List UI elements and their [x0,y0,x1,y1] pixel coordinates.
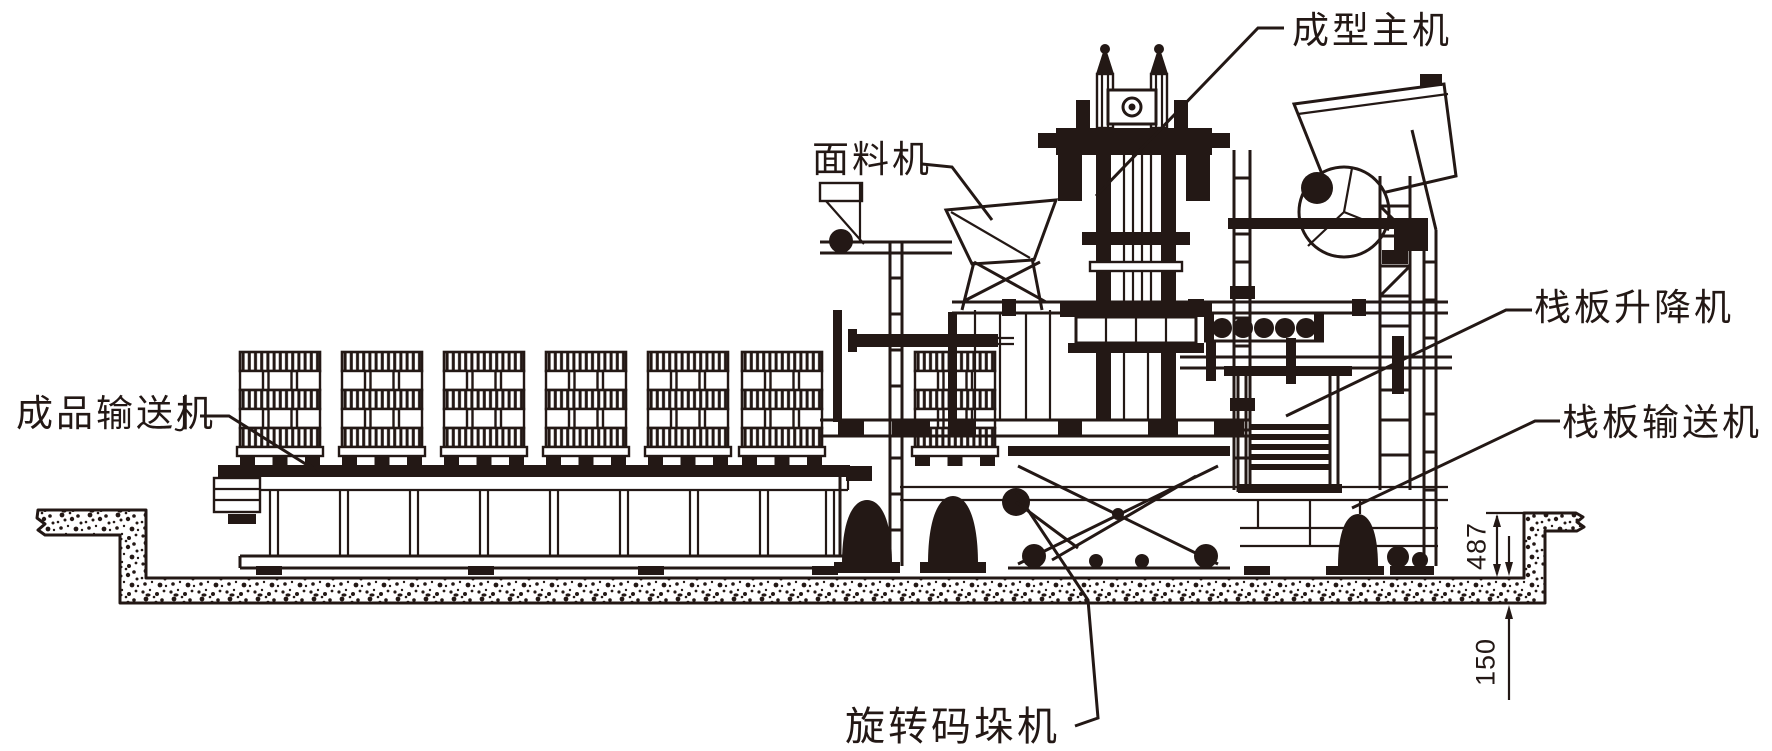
leader-pallet-conveyor [1352,421,1560,508]
pallet-conveyor-unit [1240,500,1438,575]
dimension-pit-depth: 487 [1464,522,1491,570]
rotary-palletizer-unit [834,446,1230,573]
label-face-material-machine: 面料机 [812,141,932,178]
drawing-canvas [0,0,1772,751]
label-rotary-palletizer: 旋转码垛机 [845,707,1060,747]
block-machine-line-drawing: 成型主机 面料机 栈板升降机 栈板输送机 成品输送机 旋转码垛机 487 150 [0,0,1772,751]
label-forming-machine: 成型主机 [1292,12,1452,49]
machine-base-frame [820,420,1448,500]
pallet-stacks [237,352,998,466]
label-pallet-conveyor: 栈板输送机 [1562,404,1762,441]
label-finished-product-conveyor: 成品输送机 [16,395,216,432]
leader-rotary-palletizer [1016,492,1098,726]
forming-press-unit [1038,44,1230,420]
dimension-487-marks [1486,513,1524,577]
dimension-floor-slab-thickness: 150 [1473,638,1500,686]
dimension-150-marks [1505,536,1513,700]
label-pallet-elevator: 栈板升降机 [1534,289,1734,326]
